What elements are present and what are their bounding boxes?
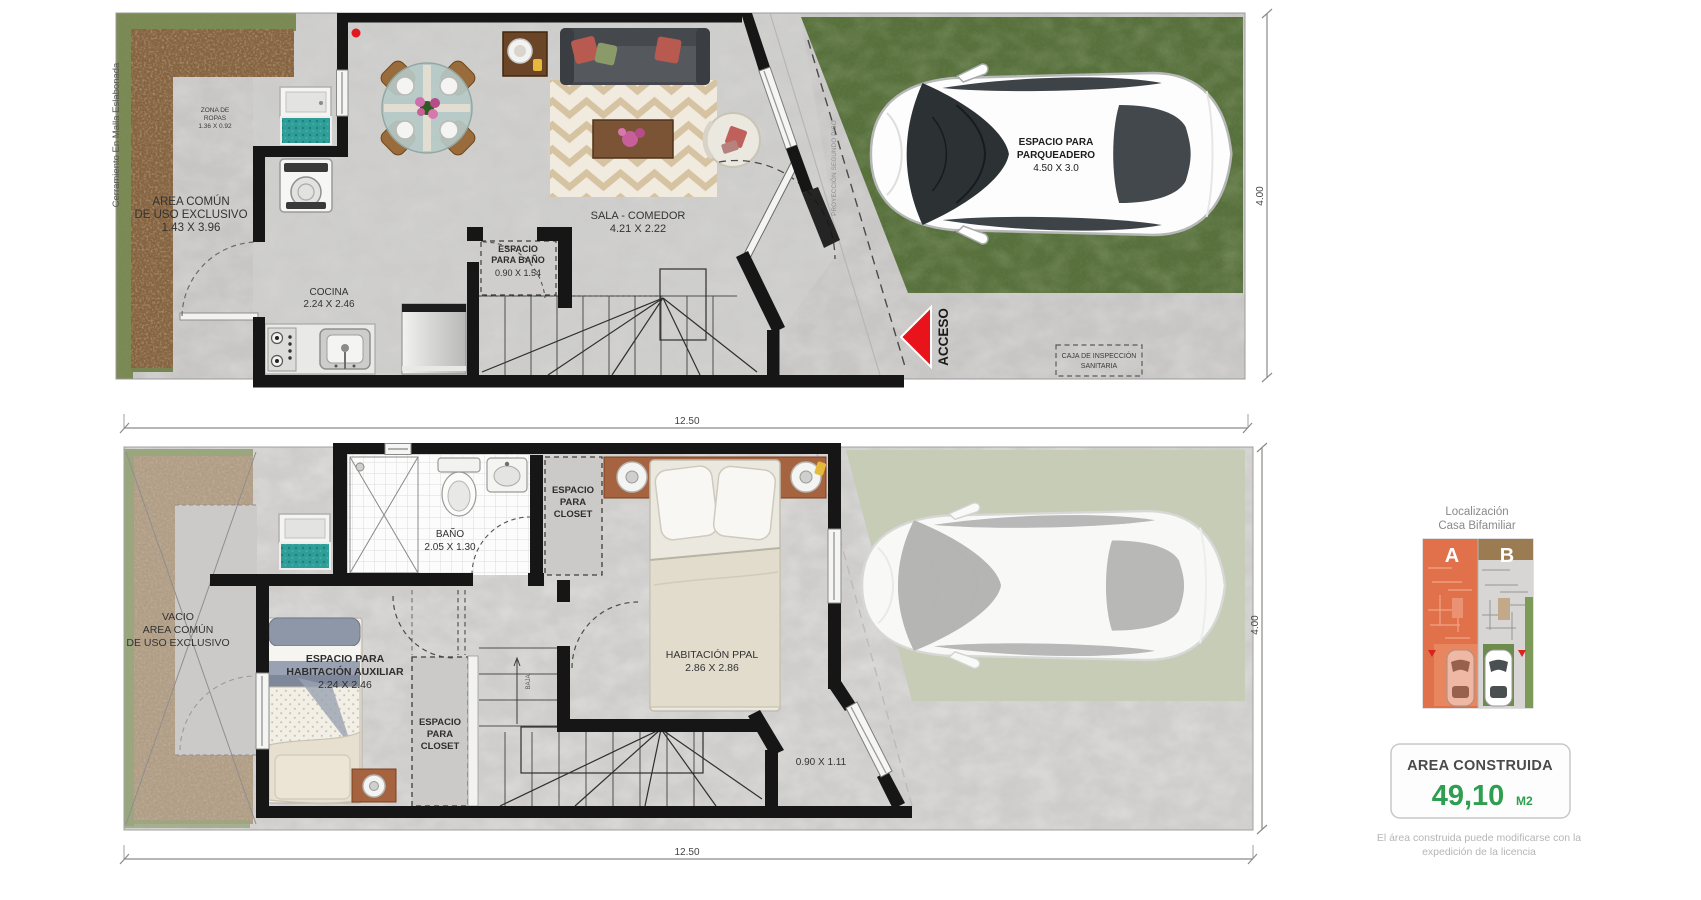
svg-text:SANITARIA: SANITARIA: [1081, 363, 1118, 370]
svg-text:0.90 X 1.11: 0.90 X 1.11: [796, 757, 847, 768]
svg-text:ESPACIO PARA: ESPACIO PARA: [1019, 137, 1094, 148]
svg-text:B: B: [1500, 545, 1514, 567]
svg-text:ESPACIO: ESPACIO: [498, 244, 538, 254]
svg-text:DE USO EXCLUSIVO: DE USO EXCLUSIVO: [134, 209, 247, 221]
svg-text:4.00: 4.00: [1255, 186, 1266, 206]
svg-text:Cerramiento En Malla Eslabonad: Cerramiento En Malla Eslabonada: [111, 62, 122, 207]
svg-text:PARA: PARA: [427, 729, 453, 740]
svg-text:2.05 X 1.30: 2.05 X 1.30: [424, 542, 476, 553]
svg-text:ESPACIO: ESPACIO: [419, 717, 461, 728]
svg-text:ACCESO: ACCESO: [936, 308, 951, 366]
svg-text:CAJA DE INSPECCIÓN: CAJA DE INSPECCIÓN: [1062, 351, 1137, 360]
svg-text:HABITACIÓN AUXILIAR: HABITACIÓN AUXILIAR: [286, 665, 404, 678]
svg-text:VACIO: VACIO: [162, 611, 194, 623]
svg-text:expedición de la licencia: expedición de la licencia: [1422, 846, 1536, 858]
svg-text:ZONA DE: ZONA DE: [201, 107, 230, 114]
svg-text:HABITACIÓN PPAL: HABITACIÓN PPAL: [666, 648, 759, 661]
svg-text:0.90 X 1.54: 0.90 X 1.54: [495, 268, 541, 278]
svg-text:ESPACIO: ESPACIO: [552, 485, 594, 496]
svg-text:Localización: Localización: [1445, 506, 1508, 518]
svg-text:4.21 X 2.22: 4.21 X 2.22: [610, 223, 666, 235]
svg-text:DE USO EXCLUSIVO: DE USO EXCLUSIVO: [126, 637, 229, 649]
svg-text:AREA COMÚN: AREA COMÚN: [143, 623, 214, 636]
svg-text:2.24 X 2.46: 2.24 X 2.46: [303, 299, 355, 310]
svg-text:12.50: 12.50: [674, 847, 699, 858]
svg-text:A: A: [1445, 545, 1459, 567]
svg-text:2.86 X 2.86: 2.86 X 2.86: [685, 662, 739, 674]
svg-text:PROYECCIÓN SEGUNDO PISO: PROYECCIÓN SEGUNDO PISO: [831, 120, 838, 216]
svg-text:2.24 X 2.46: 2.24 X 2.46: [318, 679, 372, 691]
svg-text:12.50: 12.50: [674, 416, 699, 427]
svg-text:SALA - COMEDOR: SALA - COMEDOR: [591, 210, 686, 222]
svg-text:BAJA: BAJA: [526, 674, 532, 689]
svg-text:PARQUEADERO: PARQUEADERO: [1017, 150, 1095, 161]
svg-text:1.36 X 0.92: 1.36 X 0.92: [198, 123, 232, 130]
svg-text:49,10: 49,10: [1432, 780, 1505, 812]
svg-text:4.00: 4.00: [1250, 615, 1261, 635]
svg-text:PARA BAÑO: PARA BAÑO: [491, 255, 545, 265]
svg-text:COCINA: COCINA: [310, 287, 349, 298]
svg-text:1.43 X 3.96: 1.43 X 3.96: [162, 222, 221, 234]
svg-text:BAÑO: BAÑO: [436, 527, 465, 540]
svg-text:CLOSET: CLOSET: [421, 741, 460, 752]
svg-text:M2: M2: [1516, 794, 1533, 808]
svg-text:El área construida puede modif: El área construida puede modificarse con…: [1377, 832, 1581, 844]
svg-text:AREA COMÚN: AREA COMÚN: [152, 195, 229, 208]
svg-text:ESPACIO PARA: ESPACIO PARA: [306, 653, 385, 665]
svg-text:ROPAS: ROPAS: [204, 115, 227, 122]
svg-text:4.50 X 3.0: 4.50 X 3.0: [1033, 163, 1079, 174]
svg-text:PARA: PARA: [560, 497, 586, 508]
svg-text:AREA CONSTRUIDA: AREA CONSTRUIDA: [1407, 758, 1553, 774]
svg-text:CLOSET: CLOSET: [554, 509, 593, 520]
svg-text:Casa Bifamiliar: Casa Bifamiliar: [1438, 520, 1515, 532]
